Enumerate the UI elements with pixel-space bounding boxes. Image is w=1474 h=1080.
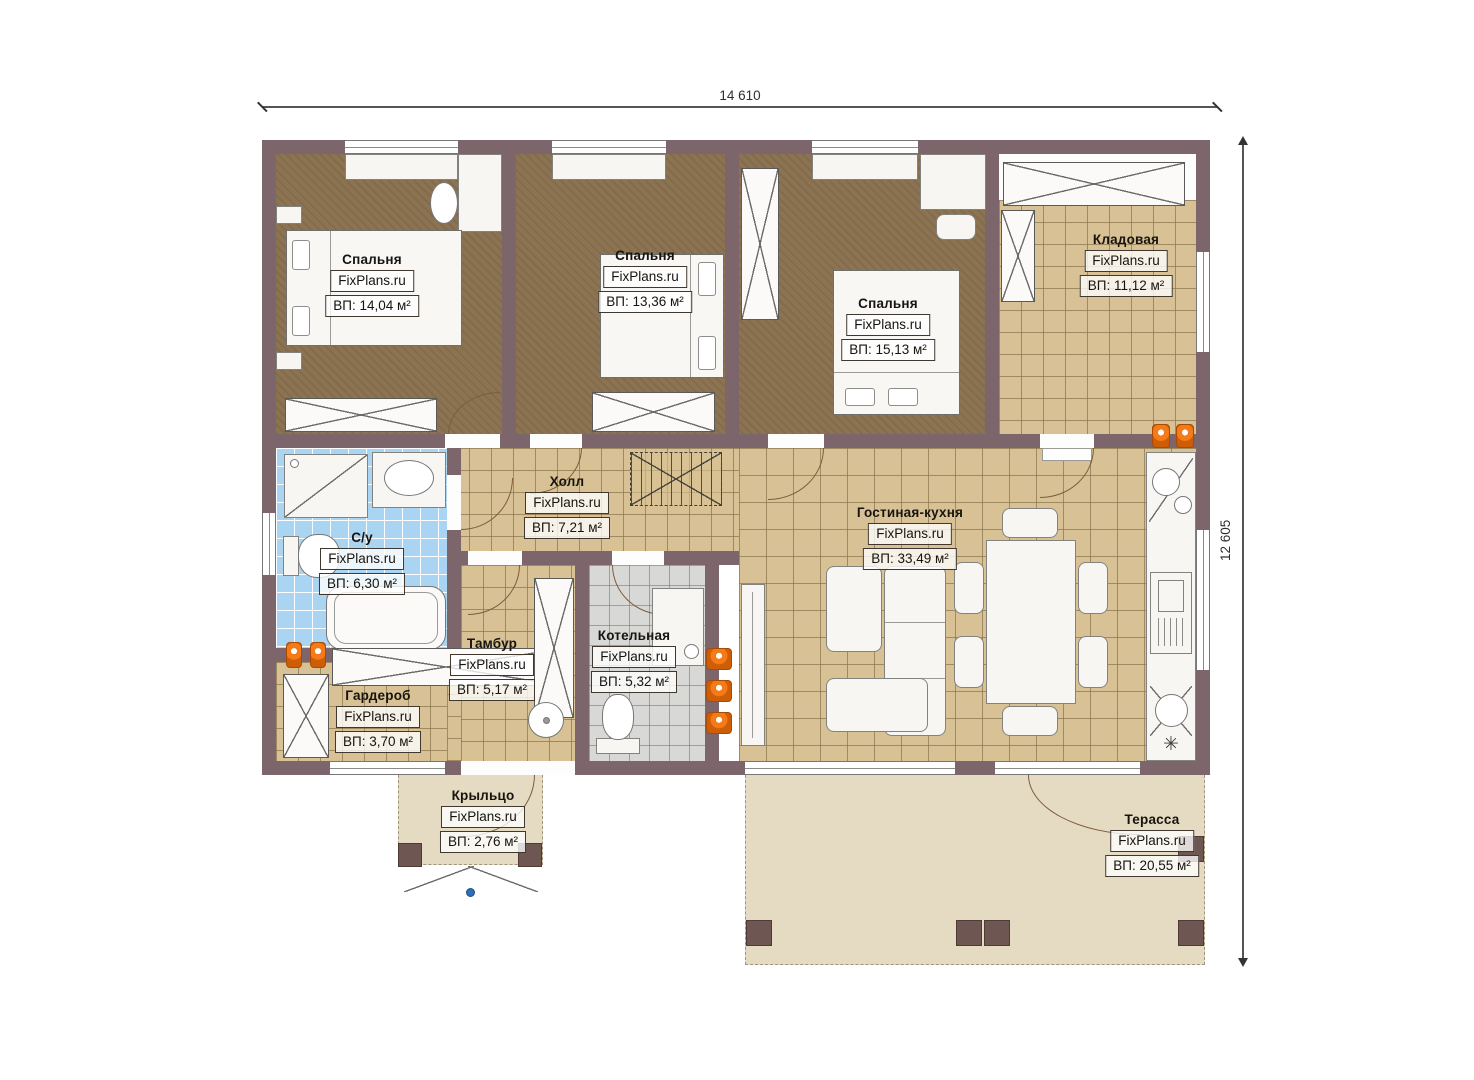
- fridge-inner: [1158, 580, 1184, 612]
- room-area: ВП: 14,04 м²: [325, 295, 419, 317]
- wardrobe-pantry-top: [1003, 162, 1185, 206]
- dimension-label-top: 14 610: [640, 88, 840, 103]
- radiator-icon: [706, 648, 732, 670]
- wall-left: [262, 140, 276, 775]
- blanket-line: [834, 372, 959, 373]
- door-opening-pantry: [1040, 434, 1094, 448]
- terrace-post: [746, 920, 772, 946]
- room-watermark: FixPlans.ru: [336, 706, 420, 728]
- bathtub-inner: [334, 592, 438, 644]
- room-label-boiler: Котельная FixPlans.ru ВП: 5,32 м²: [591, 628, 677, 693]
- room-name: Спальня: [858, 296, 918, 311]
- wardrobe-bedroom1: [285, 398, 437, 432]
- room-name: Холл: [550, 474, 585, 489]
- desk-bedroom3: [920, 154, 986, 210]
- window-bedroom2: [552, 140, 666, 154]
- room-label-tambour: Тамбур FixPlans.ru ВП: 5,17 м²: [449, 636, 535, 701]
- kitchen-sink-large: [1152, 468, 1180, 496]
- floor-plan-canvas: 14 610 12 605: [0, 0, 1474, 1080]
- window-living: [745, 761, 955, 775]
- room-watermark: FixPlans.ru: [441, 806, 525, 828]
- door-opening-bedroom1: [445, 434, 500, 448]
- room-name: Тамбур: [467, 636, 517, 651]
- stove-burner-icon: [1152, 424, 1170, 448]
- room-area: ВП: 5,17 м²: [449, 679, 535, 701]
- terrace-door-opening: [995, 761, 1140, 775]
- chair-bedroom3: [936, 214, 976, 240]
- dimension-line-right: [1242, 142, 1244, 964]
- dining-chair: [1002, 706, 1058, 736]
- porch-step-line: [468, 866, 538, 892]
- room-name: Гардероб: [345, 688, 410, 703]
- washing-machine-dot: [543, 717, 550, 724]
- room-area: ВП: 7,21 м²: [524, 517, 610, 539]
- window-bedroom1: [345, 140, 458, 154]
- kitchen-sink-small: [1174, 496, 1192, 514]
- fridge-grill: [1158, 618, 1184, 646]
- wardrobe-bedroom3: [741, 168, 779, 320]
- room-name: Спальня: [342, 252, 402, 267]
- pillow: [292, 306, 310, 336]
- pillow: [888, 388, 918, 406]
- wardrobe-pantry-left: [1001, 210, 1035, 302]
- room-area: ВП: 33,49 м²: [863, 548, 957, 570]
- door-opening-boiler: [612, 551, 664, 565]
- room-name: Кладовая: [1093, 232, 1159, 247]
- terrace-post: [984, 920, 1010, 946]
- room-area: ВП: 5,32 м²: [591, 671, 677, 693]
- round-sink: [1155, 694, 1188, 727]
- room-area: ВП: 11,12 м²: [1080, 275, 1173, 297]
- tv-unit: [741, 584, 765, 746]
- window-bathroom: [262, 513, 276, 575]
- room-watermark: FixPlans.ru: [320, 548, 404, 570]
- room-watermark: FixPlans.ru: [525, 492, 609, 514]
- room-watermark: FixPlans.ru: [1110, 830, 1194, 852]
- toilet-tank-boiler: [596, 738, 640, 754]
- attic-ladder: [630, 452, 722, 506]
- door-opening-tambour: [468, 551, 522, 565]
- room-label-hall: Холл FixPlans.ru ВП: 7,21 м²: [524, 474, 610, 539]
- window-sill-bedroom2: [552, 154, 666, 180]
- room-label-wardrobe: Гардероб FixPlans.ru ВП: 3,70 м²: [335, 688, 421, 753]
- window-sill-bedroom1: [345, 154, 458, 180]
- wall-bedroom3-pantry: [985, 154, 999, 434]
- room-label-bedroom3: Спальня FixPlans.ru ВП: 15,13 м²: [841, 296, 935, 361]
- wall-bedroom1-bedroom2: [502, 154, 516, 434]
- room-label-bathroom: С/у FixPlans.ru ВП: 6,30 м²: [319, 530, 405, 595]
- room-label-bedroom2: Спальня FixPlans.ru ВП: 13,36 м²: [598, 248, 692, 313]
- room-name: Гостиная-кухня: [857, 505, 963, 520]
- terrace-post: [956, 920, 982, 946]
- sofa-chaise: [826, 566, 882, 652]
- room-watermark: FixPlans.ru: [1084, 250, 1168, 272]
- wall-bedroom2-bedroom3: [725, 154, 739, 448]
- toilet-tank: [283, 536, 299, 576]
- toilet-bowl-boiler: [602, 694, 634, 740]
- front-door-opening: [461, 761, 575, 775]
- window-bedroom3: [812, 140, 918, 154]
- shower-drain: [290, 459, 299, 468]
- pillow: [845, 388, 875, 406]
- radiator-icon: [286, 642, 302, 668]
- window-wardrobe-room: [330, 761, 445, 775]
- room-area: ВП: 3,70 м²: [335, 731, 421, 753]
- room-name: Терасса: [1125, 812, 1180, 827]
- window-sill-bedroom3: [812, 154, 918, 180]
- tv-line: [752, 592, 753, 738]
- room-name: С/у: [351, 530, 373, 545]
- room-label-pantry: Кладовая FixPlans.ru ВП: 11,12 м²: [1080, 232, 1173, 297]
- dimension-arrow-up: [1238, 136, 1248, 145]
- sofa-ottoman: [826, 678, 928, 732]
- room-label-terrace: Терасса FixPlans.ru ВП: 20,55 м²: [1105, 812, 1199, 877]
- wardrobe-closet-left: [283, 674, 329, 758]
- window-pantry: [1196, 252, 1210, 352]
- room-label-bedroom1: Спальня FixPlans.ru ВП: 14,04 м²: [325, 252, 419, 317]
- wall-tambour-boiler: [575, 565, 589, 761]
- radiator-icon: [706, 680, 732, 702]
- terrace-post: [1178, 920, 1204, 946]
- window-kitchen: [1196, 530, 1210, 670]
- room-name: Котельная: [598, 628, 670, 643]
- dining-chair: [1078, 562, 1108, 614]
- wardrobe-tambour: [534, 578, 574, 718]
- dimension-label-right: 12 605: [1218, 470, 1233, 610]
- boiler-gauge: [684, 644, 699, 659]
- pillow: [292, 240, 310, 270]
- radiator-icon: [706, 712, 732, 734]
- pillow: [698, 336, 716, 370]
- nightstand-bedroom1-top: [276, 206, 302, 224]
- freezer-snowflake-icon: ✳: [1148, 732, 1194, 758]
- room-area: ВП: 20,55 м²: [1105, 855, 1199, 877]
- door-opening-bedroom2: [530, 434, 582, 448]
- room-area: ВП: 15,13 м²: [841, 339, 935, 361]
- wall-right: [1196, 140, 1210, 775]
- dining-chair: [954, 636, 984, 688]
- dining-chair: [1002, 508, 1058, 538]
- room-watermark: FixPlans.ru: [846, 314, 930, 336]
- room-area: ВП: 6,30 м²: [319, 573, 405, 595]
- room-area: ВП: 13,36 м²: [598, 291, 692, 313]
- radiator-icon: [310, 642, 326, 668]
- room-watermark: FixPlans.ru: [450, 654, 534, 676]
- room-watermark: FixPlans.ru: [330, 270, 414, 292]
- nightstand-bedroom1-bottom: [276, 352, 302, 370]
- room-watermark: FixPlans.ru: [592, 646, 676, 668]
- room-name: Спальня: [615, 248, 675, 263]
- dimension-arrow-down: [1238, 958, 1248, 967]
- porch-marker: [466, 888, 475, 897]
- dining-chair: [1078, 636, 1108, 688]
- porch-step-line: [404, 866, 474, 892]
- room-label-living-kitchen: Гостиная-кухня FixPlans.ru ВП: 33,49 м²: [857, 505, 963, 570]
- room-area: ВП: 2,76 м²: [440, 831, 526, 853]
- dining-table: [986, 540, 1076, 704]
- wardrobe-bedroom2: [592, 392, 715, 432]
- dimension-line-top: [262, 106, 1218, 108]
- room-watermark: FixPlans.ru: [603, 266, 687, 288]
- pillow: [698, 262, 716, 296]
- room-watermark: FixPlans.ru: [868, 523, 952, 545]
- chair-bedroom1: [430, 182, 458, 224]
- room-name: Крыльцо: [452, 788, 515, 803]
- sofa-cushion-line: [885, 622, 945, 623]
- wall-mid-left: [262, 434, 739, 448]
- porch-post: [398, 843, 422, 867]
- stove-burner-icon: [1176, 424, 1194, 448]
- desk-bedroom1: [458, 154, 502, 232]
- room-label-porch: Крыльцо FixPlans.ru ВП: 2,76 м²: [440, 788, 526, 853]
- door-opening-bathroom: [447, 475, 461, 530]
- door-opening-bedroom3: [768, 434, 824, 448]
- sink-bowl: [384, 460, 434, 496]
